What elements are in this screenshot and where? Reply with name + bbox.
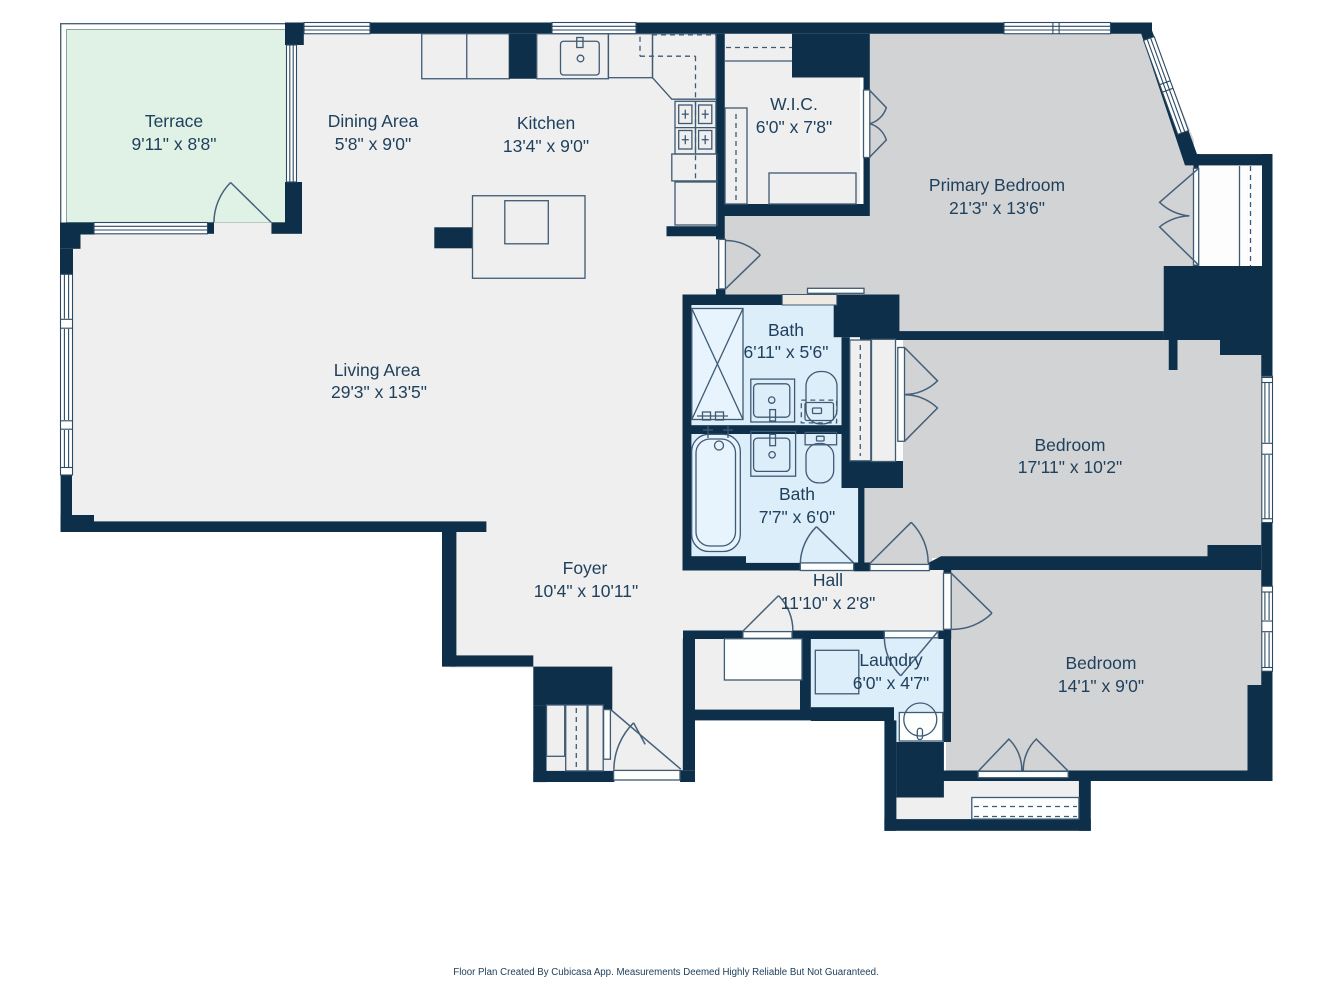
svg-text:6'0" x 7'8": 6'0" x 7'8" xyxy=(756,117,833,137)
svg-text:Dining Area: Dining Area xyxy=(328,111,419,131)
svg-text:21'3" x 13'6": 21'3" x 13'6" xyxy=(949,198,1045,218)
svg-text:Bath: Bath xyxy=(779,484,815,504)
svg-text:17'11" x 10'2": 17'11" x 10'2" xyxy=(1018,457,1122,477)
svg-text:Terrace: Terrace xyxy=(145,111,203,131)
svg-text:Bedroom: Bedroom xyxy=(1065,653,1136,673)
svg-text:Bath: Bath xyxy=(768,320,804,340)
svg-text:Foyer: Foyer xyxy=(563,558,608,578)
svg-text:7'7" x 6'0": 7'7" x 6'0" xyxy=(759,507,836,527)
svg-text:Hall: Hall xyxy=(813,570,843,590)
svg-text:9'11" x 8'8": 9'11" x 8'8" xyxy=(132,134,217,154)
svg-text:5'8" x 9'0": 5'8" x 9'0" xyxy=(335,134,412,154)
svg-text:6'11" x 5'6": 6'11" x 5'6" xyxy=(744,342,829,362)
svg-text:Living Area: Living Area xyxy=(334,360,421,380)
svg-text:29'3" x 13'5": 29'3" x 13'5" xyxy=(331,382,427,402)
svg-text:Bedroom: Bedroom xyxy=(1034,435,1105,455)
svg-text:6'0" x 4'7": 6'0" x 4'7" xyxy=(853,673,930,693)
svg-text:10'4" x 10'11": 10'4" x 10'11" xyxy=(534,581,638,601)
svg-text:13'4" x 9'0": 13'4" x 9'0" xyxy=(503,136,589,156)
svg-text:Primary Bedroom: Primary Bedroom xyxy=(929,175,1065,195)
svg-text:Floor Plan Created By Cubicasa: Floor Plan Created By Cubicasa App. Meas… xyxy=(453,967,878,978)
svg-text:14'1" x 9'0": 14'1" x 9'0" xyxy=(1058,676,1144,696)
svg-text:Laundry: Laundry xyxy=(859,650,922,670)
svg-text:Kitchen: Kitchen xyxy=(517,113,575,133)
svg-text:11'10" x 2'8": 11'10" x 2'8" xyxy=(781,593,876,613)
svg-text:W.I.C.: W.I.C. xyxy=(770,94,818,114)
